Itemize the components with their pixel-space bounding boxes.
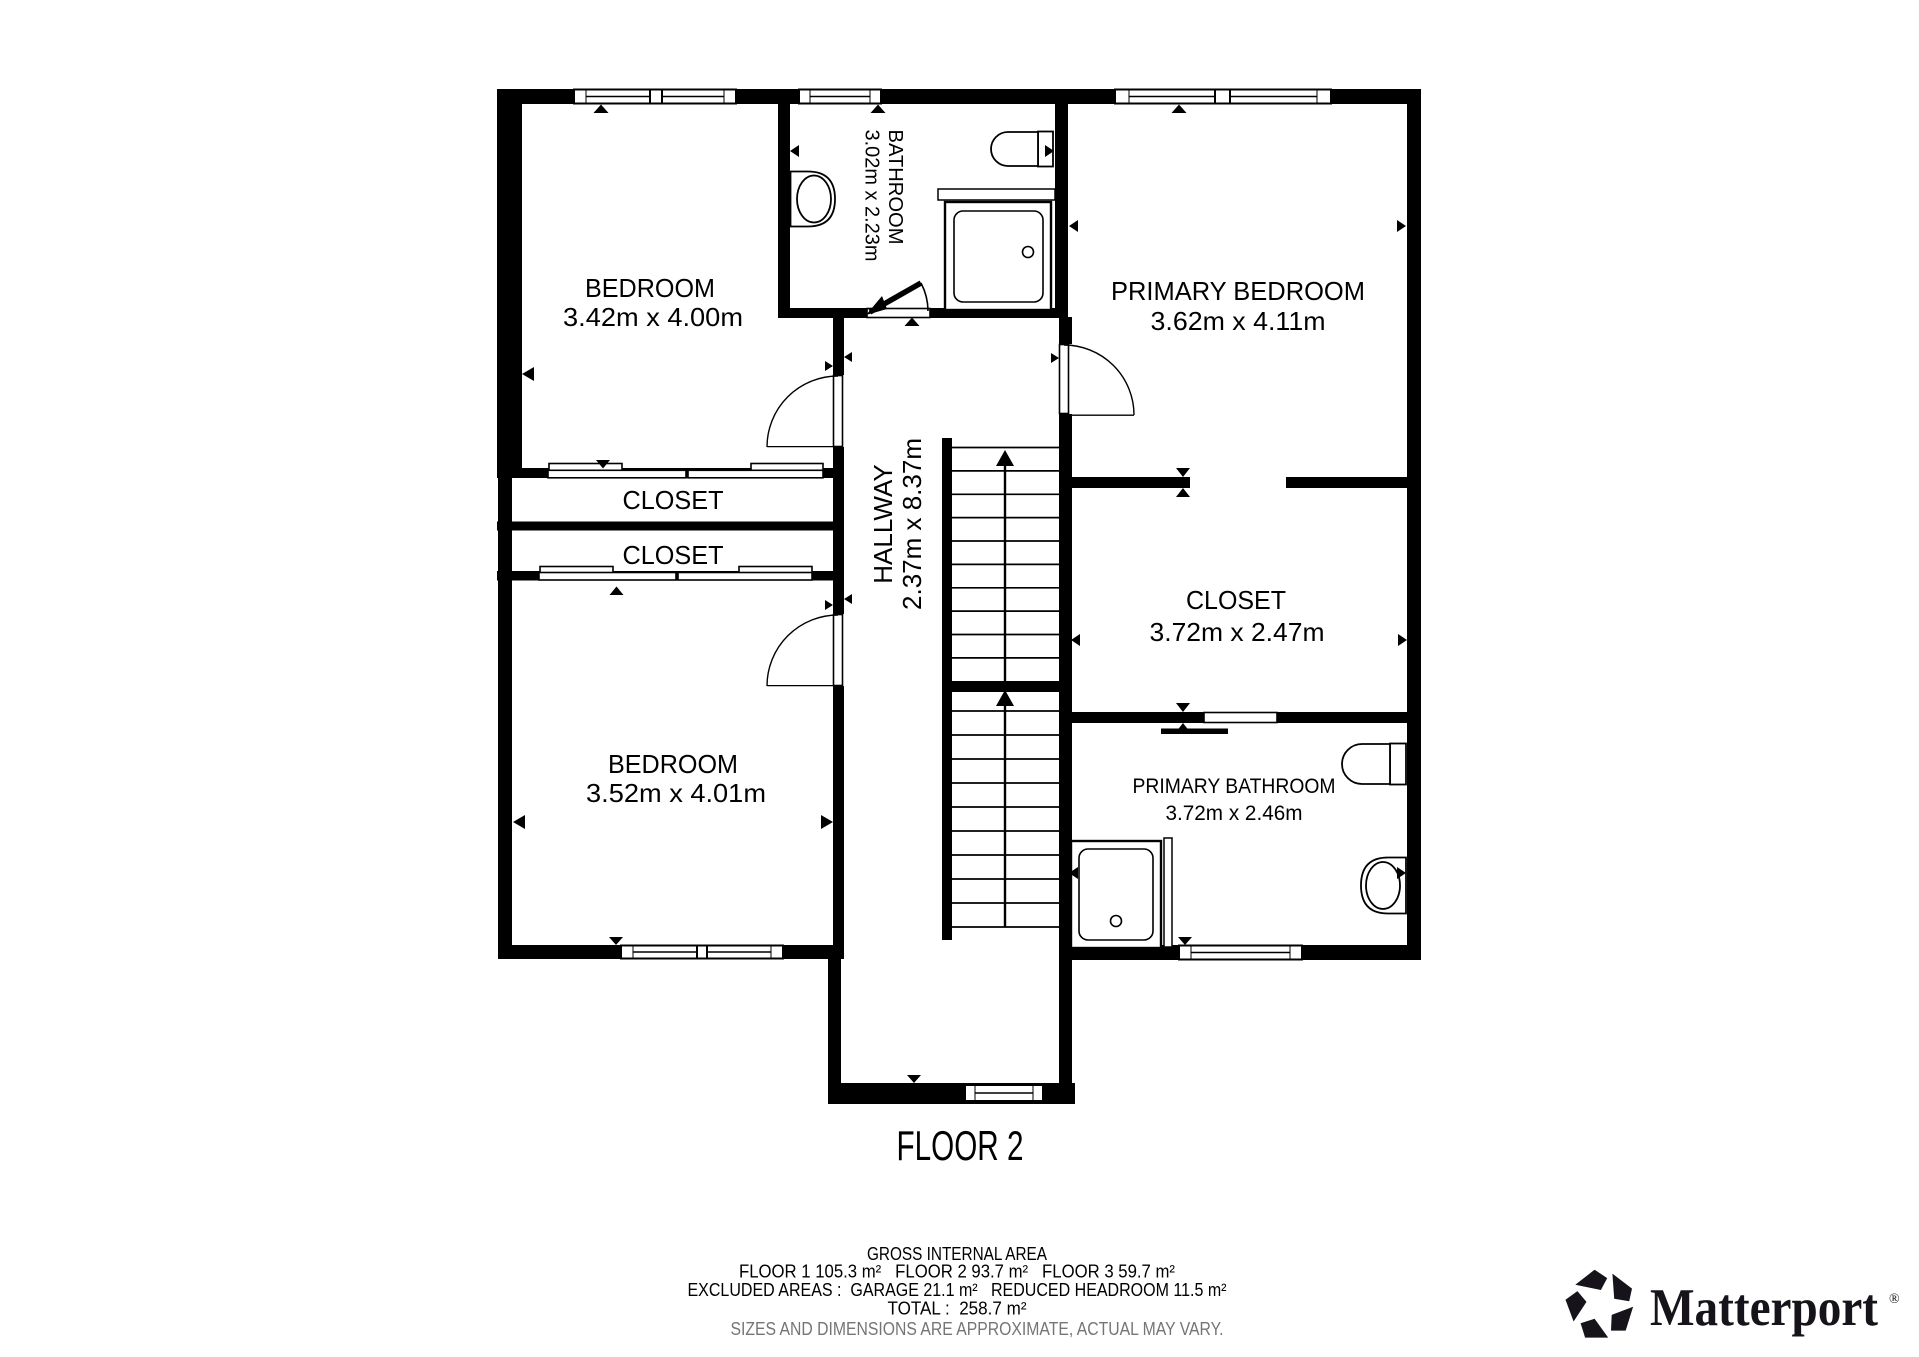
svg-text:3.72m x 2.46m: 3.72m x 2.46m	[1166, 801, 1303, 825]
svg-text:3.52m x 4.01m: 3.52m x 4.01m	[586, 778, 766, 808]
svg-text:HALLWAY: HALLWAY	[868, 464, 898, 583]
svg-text:CLOSET: CLOSET	[623, 485, 724, 515]
svg-text:CLOSET: CLOSET	[623, 540, 724, 570]
svg-text:FLOOR 2: FLOOR 2	[897, 1122, 1024, 1169]
svg-text:2.37m x 8.37m: 2.37m x 8.37m	[897, 438, 927, 610]
svg-text:PRIMARY BEDROOM: PRIMARY BEDROOM	[1111, 276, 1365, 306]
svg-text:3.62m x 4.11m: 3.62m x 4.11m	[1151, 306, 1326, 336]
svg-text:3.42m x 4.00m: 3.42m x 4.00m	[563, 302, 743, 332]
svg-text:Matterport: Matterport	[1650, 1279, 1878, 1337]
svg-text:PRIMARY BATHROOM: PRIMARY BATHROOM	[1133, 774, 1336, 798]
svg-text:3.02m x 2.23m: 3.02m x 2.23m	[861, 130, 884, 262]
svg-text:EXCLUDED AREAS : GARAGE 21.1: EXCLUDED AREAS : GARAGE 21.1 m² REDUCED …	[688, 1280, 1227, 1300]
svg-text:BATHROOM: BATHROOM	[884, 130, 907, 245]
svg-text:FLOOR 1 105.3 m² FLOOR 2 93.: FLOOR 1 105.3 m² FLOOR 2 93.7 m² FLOOR 3…	[739, 1262, 1175, 1282]
svg-text:BEDROOM: BEDROOM	[585, 273, 715, 303]
svg-text:SIZES AND DIMENSIONS ARE APPRO: SIZES AND DIMENSIONS ARE APPROXIMATE, AC…	[731, 1319, 1224, 1339]
svg-text:BEDROOM: BEDROOM	[608, 749, 738, 779]
svg-text:CLOSET: CLOSET	[1186, 585, 1286, 615]
svg-text:®: ®	[1889, 1292, 1900, 1307]
svg-text:TOTAL : 258.7 m²: TOTAL : 258.7 m²	[888, 1299, 1027, 1319]
svg-text:3.72m x 2.47m: 3.72m x 2.47m	[1150, 617, 1325, 647]
